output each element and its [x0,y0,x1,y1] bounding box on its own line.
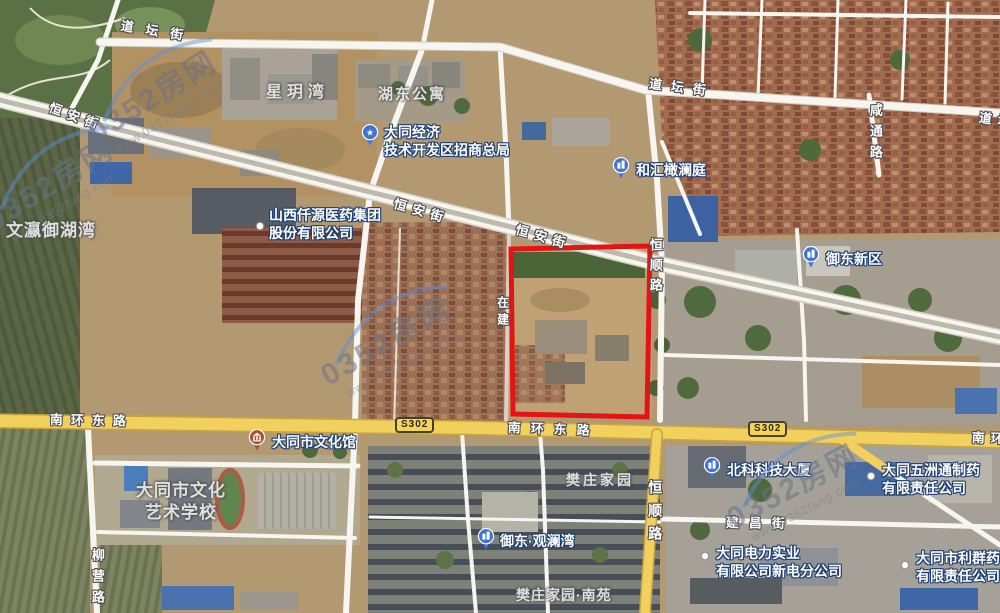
star-pin[interactable]: ★ [361,124,379,147]
poi-label: 御东·观澜湾 [500,532,575,550]
street-label: 恒顺路 [646,480,664,549]
area-label: 樊庄家园·南苑 [516,586,612,604]
poi-label: 大同电力实业有限公司新电分公司 [716,544,842,580]
poi-label: 大同市利群药有限责任公司 [916,549,1000,585]
poi-label: 和汇橄澜庭 [636,161,706,179]
poi-label: 大同市文化馆 [272,433,356,451]
dot-marker[interactable] [866,471,877,482]
area-label: 湖东公寓 [378,85,446,105]
street-label: 道坛街 [119,18,196,46]
map-canvas[interactable]: 道坛街道坛街道坛街恒安街恒安街恒安街恒顺路恒顺路南环东路南环东路南环东路建昌街柳… [0,0,1000,613]
poi-label: 御东新区 [826,250,882,268]
street-label: 咸通路 [866,103,883,166]
building-pin[interactable] [703,457,721,480]
dot-marker[interactable] [900,560,911,571]
map-labels-layer: 道坛街道坛街道坛街恒安街恒安街恒安街恒顺路恒顺路南环东路南环东路南环东路建昌街柳… [0,0,1000,613]
street-label: 南环东路 [971,430,1000,450]
poi-label: 北科科技大厦 [727,461,811,479]
area-label: 大同市文化艺术学校 [136,480,226,524]
street-label: 南环东路 [50,412,134,430]
poi-label: 山西仟源医药集团股份有限公司 [269,206,381,242]
street-label: 道坛街 [978,110,1000,135]
route-badge: S302 [395,417,434,433]
street-label: 恒顺路 [646,238,663,298]
street-label: 在建 [494,296,510,330]
street-label: 恒安街 [391,196,450,228]
area-label: 文瀛御湖湾 [6,220,96,242]
street-label: 柳营路 [88,548,105,611]
street-label: 道坛街 [648,76,716,101]
poi-label: 大同五洲通制药有限责任公司 [882,461,980,497]
dot-marker[interactable] [255,221,266,232]
route-badge: S302 [748,421,787,437]
poi-label: 大同经济技术开发区招商总局 [384,123,510,159]
street-label: 恒安街 [46,100,105,135]
watermark: 0352房网www.0352fang.com [311,284,465,407]
museum-pin[interactable] [248,429,266,452]
svg-text:★: ★ [366,128,374,138]
street-label: 建昌街 [726,515,795,533]
dot-marker[interactable] [700,551,711,562]
building-pin[interactable] [477,528,495,551]
street-label: 恒安街 [513,222,572,254]
street-label: 南环东路 [507,420,600,440]
building-pin[interactable] [612,157,630,180]
building-pin[interactable] [802,246,820,269]
area-label: 星玥湾 [266,83,329,104]
area-label: 樊庄家园 [566,471,634,489]
watermark: 0352房网www.0352fang.com [78,37,231,163]
